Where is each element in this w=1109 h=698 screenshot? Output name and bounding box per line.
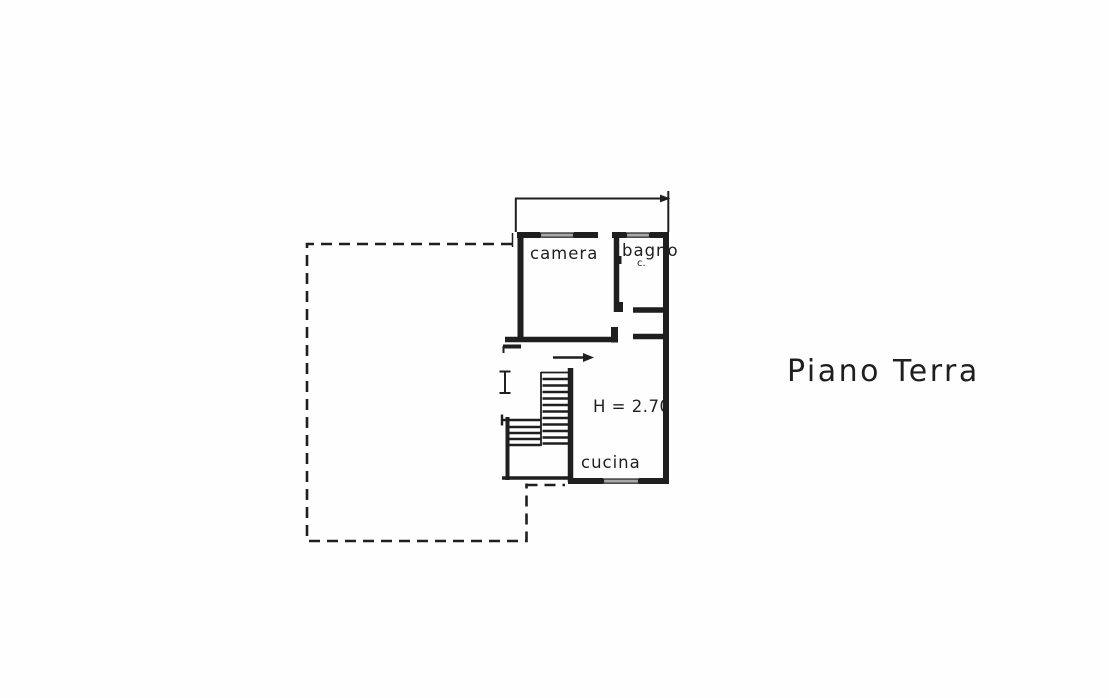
entrance-arrow bbox=[553, 353, 594, 362]
garden-dashed-outline bbox=[307, 244, 565, 541]
entrance-arrow-head-icon bbox=[583, 353, 594, 362]
room-label-bagno: bagno bbox=[622, 241, 679, 260]
balcony bbox=[515, 191, 671, 232]
partition-door-jamb bbox=[618, 302, 624, 312]
room-label-cucina: cucina bbox=[581, 453, 641, 472]
camera-window bbox=[541, 233, 574, 237]
floor-plan-scan: camera bagno c. H = 2.70 cucina Piano Te… bbox=[0, 0, 1109, 698]
labels: camera bagno c. H = 2.70 cucina Piano Te… bbox=[530, 241, 980, 472]
partition-hinge-mark bbox=[618, 256, 622, 264]
camera-door-jamb bbox=[611, 327, 618, 343]
cucina-window bbox=[604, 479, 639, 483]
entrance-door-opening bbox=[500, 372, 511, 394]
bagno-window bbox=[627, 233, 650, 237]
garden-boundary bbox=[307, 244, 527, 541]
staircase bbox=[502, 372, 568, 446]
floor-title: Piano Terra bbox=[787, 354, 980, 389]
room-label-camera: camera bbox=[530, 244, 598, 263]
floor-plan-drawing: camera bagno c. H = 2.70 cucina Piano Te… bbox=[0, 0, 1109, 698]
ceiling-height-annotation: H = 2.70 bbox=[593, 397, 670, 416]
bagno-abbrev-label: c. bbox=[637, 258, 646, 269]
